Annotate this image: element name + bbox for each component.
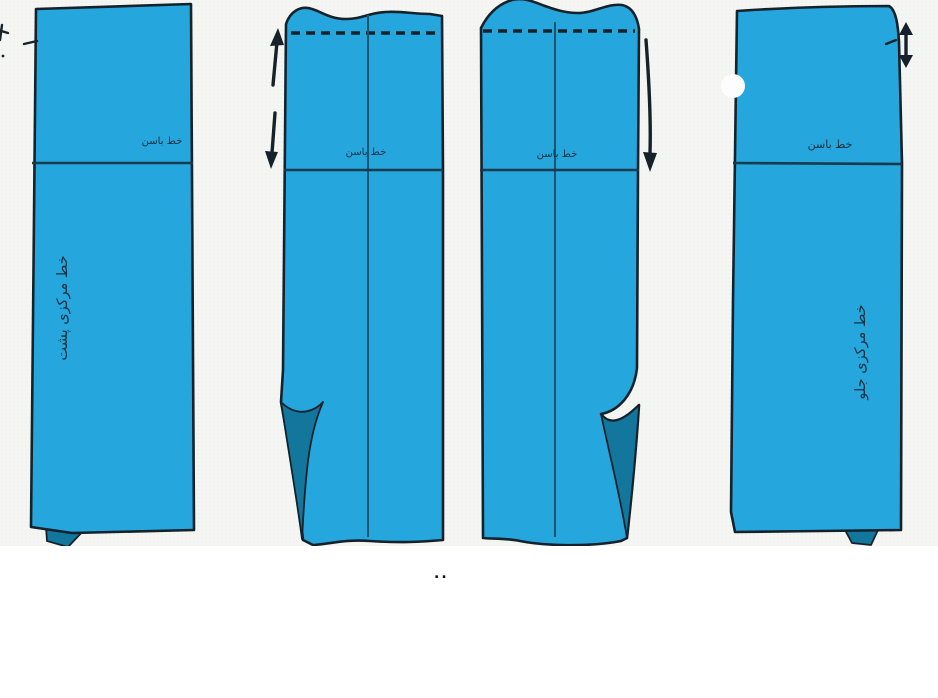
edge-scribble-mark	[0, 25, 8, 40]
front-panel-bottom-fold-flap	[845, 530, 878, 545]
front-panel-hip-line-label: خط باسن	[790, 139, 870, 150]
front-panel-shape	[731, 6, 902, 532]
front-half-hip-line-label: خط باسن	[517, 150, 597, 160]
front-half-panel-folded-hem	[480, 0, 657, 545]
back-skirt-panel	[24, 4, 194, 546]
scan-edge-marks	[0, 25, 8, 57]
double-vertical-arrow-icon	[899, 22, 913, 68]
up-arrow-icon	[270, 28, 284, 85]
back-half-panel-folded-hem	[265, 8, 443, 545]
pattern-diagram-drawing	[0, 0, 938, 546]
back-half-hip-line-label: خط باسن	[326, 148, 406, 158]
center-back-line-label: خط مرکزی پشت	[56, 233, 76, 383]
center-front-line-label: خط مرکزی جلو	[854, 277, 874, 427]
caption-dots-mark: ..	[434, 566, 449, 582]
edge-dot-mark	[2, 55, 5, 58]
long-down-arrow-icon	[643, 40, 657, 172]
scanned-page: خط باسن خط باسن خط باسن خط باسن خط مرکزی…	[0, 0, 938, 698]
front-skirt-panel	[721, 6, 913, 545]
pattern-diagram-area: خط باسن خط باسن خط باسن خط باسن خط مرکزی…	[0, 0, 938, 546]
down-arrow-icon	[265, 113, 278, 169]
front-panel-edge-punch-hole	[721, 74, 745, 98]
back-panel-hip-line-label: خط باسن	[122, 137, 202, 147]
front-panel-hip-line	[733, 163, 902, 164]
